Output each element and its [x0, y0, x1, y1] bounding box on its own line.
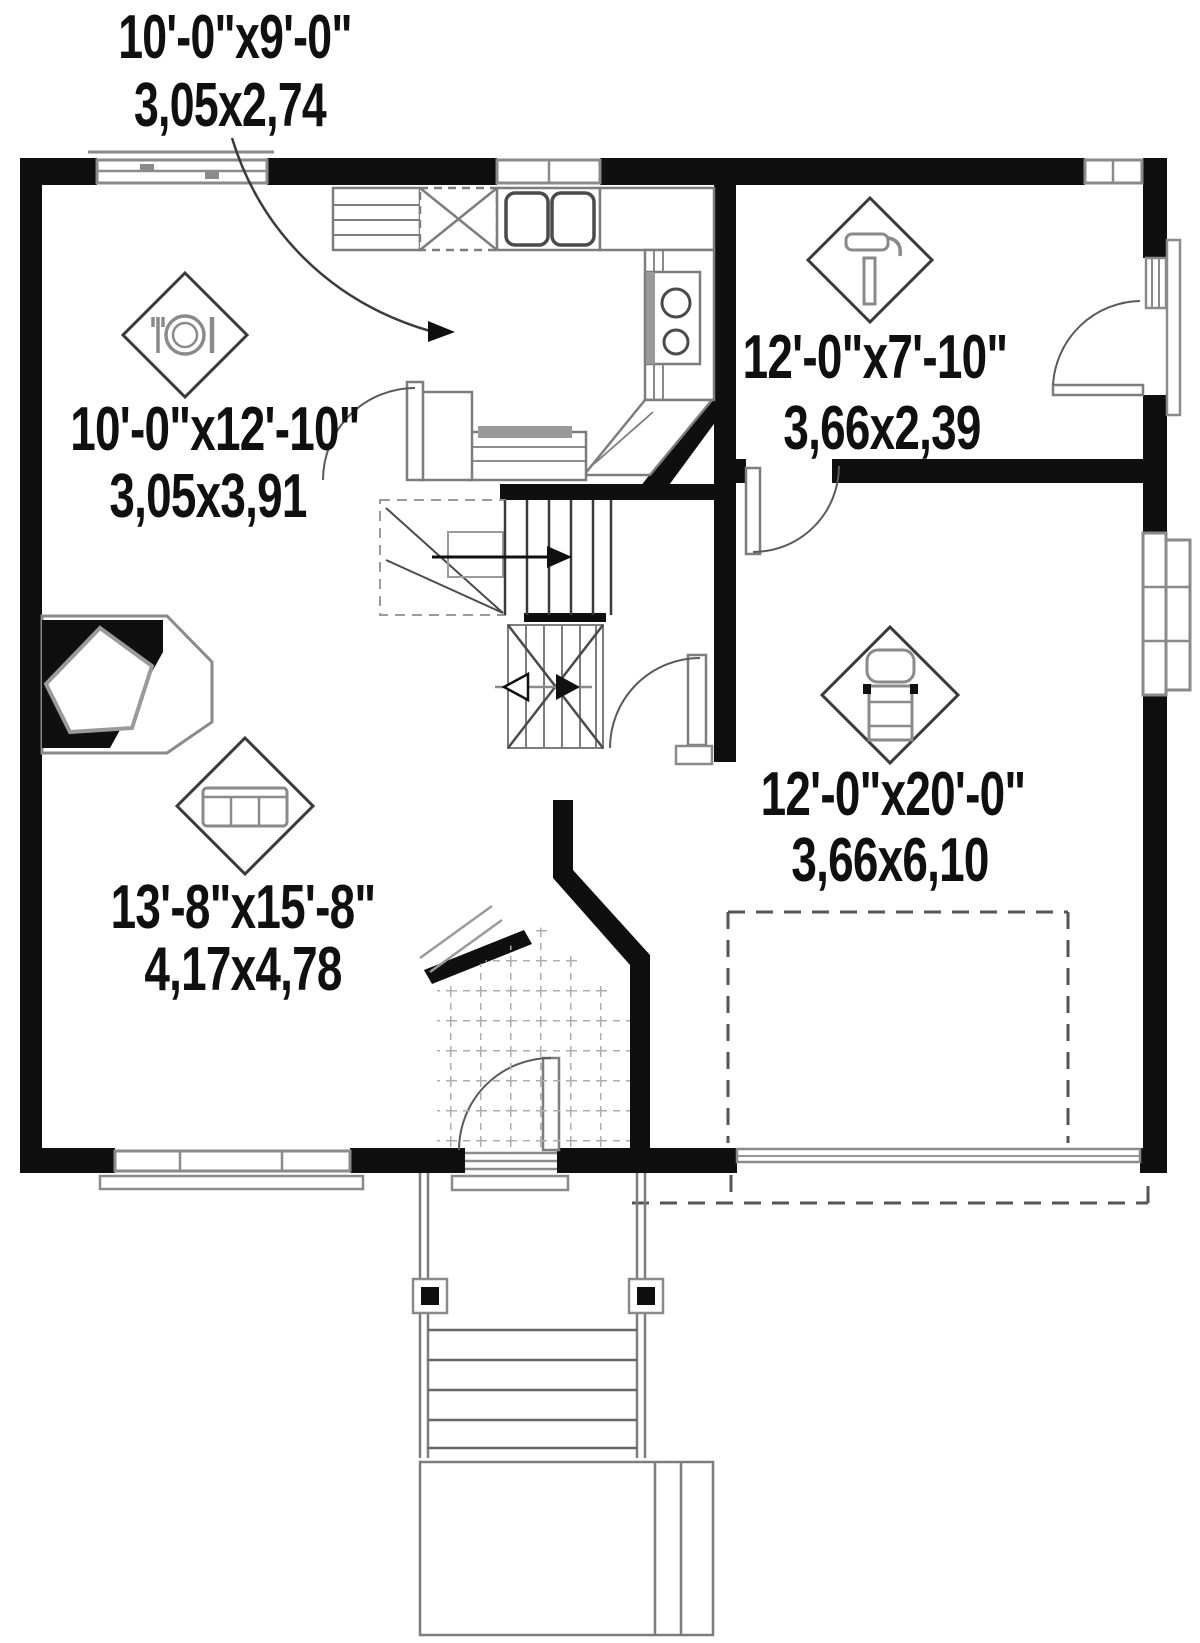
hall-door-swing: [610, 658, 700, 748]
car-wheel: [910, 684, 918, 694]
kitchen-end-cabinet: [422, 392, 472, 480]
wall-left: [20, 158, 42, 1173]
driveway-dashed: [632, 1175, 1148, 1203]
workshop-dims-imperial: 12'-0"x7'-10": [743, 322, 1008, 391]
leader-arrow: [428, 321, 455, 342]
dining-dims-imperial: 10'-0"x12'-10": [70, 394, 360, 463]
workshop-dims-metric: 3,66x2,39: [783, 393, 980, 462]
workshop-door-trim: [1167, 240, 1180, 415]
workshop-door-leaf: [1053, 385, 1143, 395]
winder-line: [386, 560, 503, 613]
dining-icon: [123, 273, 247, 397]
counter-bar-top: [478, 426, 572, 438]
wall-right-1: [1143, 158, 1167, 258]
car-wheel: [863, 684, 871, 694]
hall-door-leaf: [688, 655, 706, 745]
living-dims-metric: 4,17x4,78: [144, 934, 341, 1003]
window-sash-tick: [205, 172, 219, 179]
workshop-door-sidelite: [1146, 258, 1166, 308]
wall-garage-divider-stub: [736, 459, 746, 483]
hammer-handle: [864, 258, 875, 304]
window-sash-tick: [140, 164, 154, 171]
kitchen-dims-imperial: 10'-0"x9'-0": [118, 3, 352, 72]
walkway-landing: [420, 1462, 713, 1635]
kitchen-dims-metric: 3,05x2,74: [134, 71, 327, 140]
living-dims-imperial: 13'-8"x15'-8": [111, 872, 376, 941]
dining-dims-metric: 3,05x3,91: [109, 461, 306, 530]
garage-window-outer: [1166, 540, 1190, 690]
garage-step: [676, 746, 712, 764]
wall-bottom-3: [557, 1148, 737, 1173]
wall-bottom-2: [350, 1148, 465, 1173]
porch-steps: [428, 1330, 637, 1448]
wall-right-2: [1143, 395, 1167, 533]
porch-post-right-core: [637, 1287, 655, 1305]
dining-door-leaf: [407, 382, 423, 480]
kitchen: [333, 188, 714, 480]
car-icon: [822, 627, 958, 763]
garage-dims-metric: 3,66x6,10: [791, 825, 988, 894]
wall-bottom-4: [1140, 1148, 1167, 1173]
wall-kitchen-hall-divider: [500, 484, 716, 500]
car-body: [869, 686, 912, 740]
kitchen-counter-bottom: [470, 432, 586, 480]
wall-hall-right: [714, 184, 736, 762]
sink-bowl-left: [506, 193, 548, 245]
wall-top-2: [267, 158, 497, 185]
garage-divider-door-leaf: [746, 468, 760, 554]
car-hood: [867, 650, 914, 682]
garage-divider-door-swing: [753, 466, 839, 552]
garage-window-inner: [1143, 533, 1166, 695]
stove-edge: [646, 272, 655, 364]
entry-vestibule: [420, 906, 630, 1148]
winder-line: [386, 508, 503, 613]
parking-space-dashed: [728, 912, 1068, 1143]
sofa-body: [203, 788, 287, 826]
wall-top-3: [600, 158, 1085, 185]
stair-solid-arrow: [556, 674, 580, 700]
wall-bottom-1: [20, 1148, 115, 1173]
wall-right-3: [1143, 695, 1167, 1173]
stair-up-arrow: [547, 546, 572, 568]
living-window: [115, 1151, 350, 1171]
garage-dims-imperial: 12'-0"x20'-0": [761, 759, 1026, 828]
front-door-threshold: [452, 1153, 568, 1190]
floor-plan: 10'-0"x9'-0" 3,05x2,74 10'-0"x12'-10" 3,…: [0, 0, 1200, 1643]
porch-post-left-core: [421, 1287, 439, 1305]
sink-bowl-right: [552, 193, 594, 245]
hammer-head: [846, 234, 888, 250]
living-window-sill: [100, 1176, 363, 1189]
dining-diamond: [123, 273, 247, 397]
front-porch: [413, 1173, 713, 1635]
workshop-door-swing: [1053, 301, 1140, 385]
stairs: [380, 500, 611, 748]
corner-fireplace: [42, 616, 212, 753]
kitchen-counter-top-right: [600, 188, 714, 250]
sofa-icon: [177, 738, 313, 874]
hammer-icon: [808, 198, 932, 322]
floor-plan-drawing: 10'-0"x9'-0" 3,05x2,74 10'-0"x12'-10" 3,…: [0, 0, 1200, 1643]
